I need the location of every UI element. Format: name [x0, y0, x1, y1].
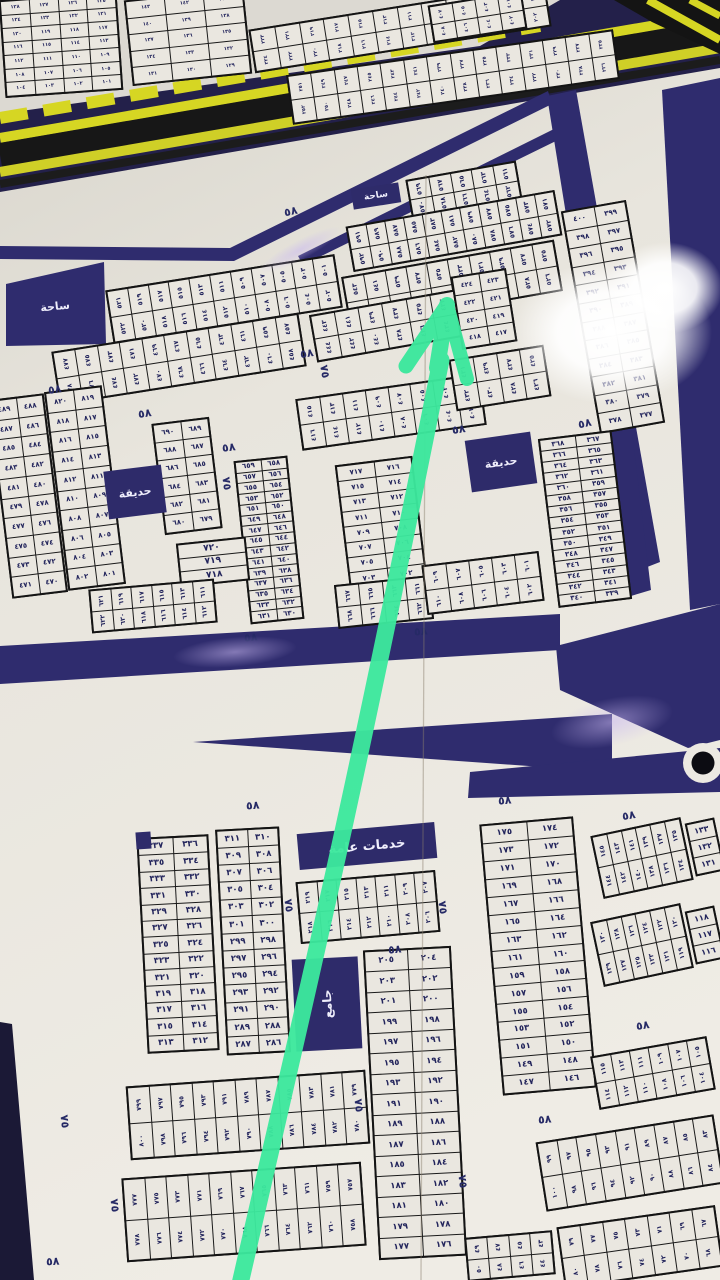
plot-cell: ٨١٩ [74, 387, 103, 409]
plot-cell: ٢٩٠ [257, 1000, 287, 1018]
plot-cell: ٢٠٨ [398, 903, 419, 933]
plot-cell: ١٢١ [88, 8, 117, 22]
plot-cell: ٤٨٧ [0, 418, 20, 440]
plot-cell: ١١٨ [60, 23, 89, 37]
plot-cell: ٣٠٦ [249, 863, 279, 881]
plot-cell: ٥٧١ [535, 192, 556, 215]
plot-cell: ٤٢٩ [474, 354, 500, 381]
street-width-label: ٧٥ [220, 476, 233, 491]
plot-cell: ٢٤٠ [430, 78, 455, 103]
plot-cell: ٦٠٣ [492, 556, 517, 581]
plot-cell: ٤٠٩ [366, 388, 391, 414]
plot-cell: ٧٧٠ [212, 1213, 235, 1254]
plot-cell: ٦٦٥ [359, 582, 383, 604]
plot-cell: ٥١٦ [173, 304, 196, 331]
plot-cell: ١٩٧ [369, 1032, 411, 1054]
plot-cell: ٥٨٦ [408, 237, 429, 260]
plot-cell: ٥٢٧ [511, 246, 535, 273]
plot-cell: ٢١٩ [300, 20, 327, 43]
plot-cell: ٥٠٨ [255, 291, 278, 318]
street-width-label: ٥٨ [413, 625, 428, 637]
plot-cell: ٤٠٢ [501, 10, 525, 30]
plot-cell: ٥٧٢ [539, 213, 560, 236]
plot-cell: ٢١٢ [401, 25, 428, 48]
plot-cell: ٥٢٦ [536, 266, 560, 293]
plot-block-b-strip-1: ٧٩٩٧٩٧٧٩٥٧٩٣٧٩١٧٨٩٧٨٧٧٨٥٧٨٣٧٨١٧٧٩٨٠٠٧٩٨٧… [126, 1070, 371, 1161]
plot-cell: ٤٢٥ [520, 347, 546, 374]
plot-cell: ٨١٨ [49, 410, 78, 432]
plot-cell: ٢١٢ [359, 907, 380, 937]
plot-cell: ٢١٧ [317, 881, 338, 911]
plot-cell: ١٠٢ [64, 77, 93, 91]
plot-cell: ٥٩٠ [370, 243, 391, 266]
plot-cell: ٦١٣ [172, 583, 193, 604]
plot-cell: ٢٩٥ [224, 967, 254, 985]
plot-cell: ٤١٣ [320, 395, 345, 421]
plot-cell: ٢٥٠ [315, 94, 340, 119]
plot-cell: ٥٢٥ [532, 242, 556, 269]
plot-cell: ٧٤ [629, 1246, 654, 1277]
plot-cell: ٣١٦ [182, 1000, 216, 1017]
plot-block-top-board-2: ١٤٣١٤٢١٤١١٤٠١٣٩١٣٨١٣٧١٣٦١٣٥١٣٤١٣٣١٣٢١٣١١… [124, 0, 252, 86]
plot-cell: ٣١٠ [248, 829, 278, 847]
plot-cell: ٦٨ [696, 1237, 720, 1268]
plot-cell: ٢١٣ [356, 877, 377, 907]
plot-cell: ٦٨٧ [183, 437, 211, 457]
plot-cell: ٧٧ [581, 1223, 606, 1254]
plot-block-r-strip-2: ١٤٥١٤٣١٤١١٣٩١٣٧١٣٥١٤٤١٤٢١٤٠١٣٨١٣٦١٣٤ [590, 817, 693, 899]
plot-cell: ٥٠١ [313, 256, 336, 283]
plot-cell: ٣٣٤ [174, 853, 208, 870]
plot-cell: ٥١٨ [153, 308, 176, 335]
plot-block-b-strip-4: ٤٩٤٧٤٥٤٣٥٠٤٨٤٦٤٤ [464, 1230, 556, 1280]
plot-cell: ٤٧٦ [31, 513, 59, 535]
plot-cell: ٨٠٤ [65, 547, 94, 569]
plot-cell: ٤١٠ [369, 413, 394, 439]
plot-block-u-strip-m2: ٦٠٩٦٠٧٦٠٥٦٠٣٦٠١٦١٠٦٠٨٦٠٦٦٠٤٦٠٢ [421, 551, 544, 615]
plot-cell: ١٧٩ [379, 1216, 421, 1238]
plot-cell: ٨٠ [563, 1255, 588, 1280]
plot-cell: ٢١١ [397, 4, 424, 27]
plot-cell: ٦٨٥ [185, 455, 213, 475]
plot-cell: ٤٦٢ [235, 347, 260, 375]
plot-cell: ١٧٧ [380, 1236, 422, 1258]
plot-cell: ٨١٢ [56, 469, 85, 491]
plot-block-r-strip-3: ١٣٠١٢٨١٢٦١٢٤١٢٢١٢٠١٢٩١٢٧١٢٥١٢٣١٢١١١٩ [590, 903, 694, 987]
plot-cell: ١٠٤ [691, 1064, 713, 1091]
plot-cell: ٧٦٥ [252, 1170, 275, 1211]
plot-cell: ٧٥٧ [338, 1164, 361, 1205]
plot-cell: ٢١٠ [378, 905, 399, 935]
plot-blocks-layer: ١٢٨١٢٧١٢٦١٢٥١٢٤١٢٣١٢٢١٢١١٢٠١١٩١١٨١١٧١١٦١… [0, 0, 720, 1280]
plot-cell: ١٢٣ [30, 12, 59, 26]
plot-cell: ٢٠٣ [366, 971, 408, 993]
plot-cell: ١٨٣ [377, 1175, 419, 1197]
plot-cell: ٧١ [648, 1214, 673, 1245]
plot-cell: ٢٣٢ [523, 65, 548, 90]
plot-cell: ٦٧٩ [192, 509, 220, 529]
plot-cell: ٧٧٣ [166, 1176, 189, 1217]
plot-cell: ٤٨٣ [0, 457, 25, 479]
plot-cell: ١١٢ [5, 54, 34, 68]
plot-cell: ٢٩٣ [225, 984, 255, 1002]
plot-cell: ٦٦٧ [336, 585, 360, 607]
plot-block-r-pair-1: ١٧٥١٧٤١٧٣١٧٢١٧١١٧٠١٦٩١٦٨١٦٧١٦٦١٦٥١٦٤١٦٣١… [479, 816, 596, 1095]
plot-cell: ٢١٨ [300, 912, 321, 942]
plot-cell: ٥٧٦ [501, 220, 522, 243]
plot-cell: ١٢٤ [2, 14, 31, 28]
plot-cell: ٣٣٠ [176, 885, 210, 902]
plot-cell: ٢٩٢ [256, 983, 286, 1001]
plot-cell: ٣٢٤ [178, 935, 212, 952]
plot-cell: ٢١٤ [376, 29, 403, 52]
street-width-label: ٥٨ [635, 1019, 650, 1032]
plot-cell: ٧٥ [603, 1220, 628, 1251]
plot-cell: ٦١٩ [111, 588, 132, 609]
plot-cell: ٢٢٦ [592, 55, 617, 80]
plot-cell: ٢٠٠ [410, 989, 452, 1011]
plot-cell: ٣٢٠ [180, 967, 214, 984]
plot-cell: ٧٦٣ [274, 1168, 297, 1209]
plot-cell: ٦٠٦ [472, 582, 497, 607]
street-width-label: ٥٨ [299, 347, 314, 360]
plot-cell: ٨١٧ [76, 407, 105, 429]
plot-cell: ٦١٢ [194, 601, 215, 622]
plot-cell: ٦٨٩ [181, 419, 209, 439]
plot-cell: ٦١٧ [131, 586, 152, 607]
plot-cell: ٤٤٠ [363, 327, 390, 352]
plot-cell: ٤٠٨ [392, 409, 417, 435]
plot-cell: ٧٨٤ [302, 1110, 325, 1146]
plot-cell: ٣٢٩ [142, 904, 176, 921]
plot-cell: ١٠٥ [92, 62, 121, 76]
plot-cell: ٢٨٩ [227, 1019, 257, 1037]
plot-cell: ٧٦٤ [277, 1209, 300, 1250]
area-label: حديقة [465, 432, 538, 493]
plot-cell: ٤٩ [466, 1238, 488, 1259]
plot-cell: ٢٣١ [520, 41, 545, 66]
plot-cell: ٤٣٨ [387, 322, 414, 347]
plot-cell: ٥١٣ [190, 276, 213, 303]
street-width-label: ٧٥ [282, 898, 295, 913]
plot-block-r-strip-4: ١١٥١١٣١١١١٠٩١٠٧١٠٥١١٤١١٢١١٠١٠٨١٠٦١٠٤ [590, 1036, 716, 1110]
plot-cell: ٥٢١ [107, 289, 130, 316]
plot-cell: ٥٠٢ [317, 282, 340, 309]
plot-cell: ٧٣ [625, 1217, 650, 1248]
plot-cell: ٢١٥ [348, 12, 375, 35]
plot-cell: ٥٩٢ [352, 246, 373, 269]
plot-cell: ٤٧٣ [98, 343, 123, 371]
plot-cell: ٢٨٦ [258, 1034, 288, 1052]
street-width-label: ٥٨ [46, 1256, 60, 1268]
plot-cell: ٤٧٩ [2, 497, 30, 519]
plot-cell: ٤٦١ [231, 322, 256, 350]
plot-block-top-board-1: ١٢٨١٢٧١٢٦١٢٥١٢٤١٢٣١٢٢١٢١١٢٠١١٩١١٨١١٧١١٦١… [0, 0, 123, 98]
plot-cell: ٧٩١ [214, 1081, 237, 1117]
plot-cell: ١١٦ [4, 41, 33, 55]
plot-block-r-strip-6: ٧٩٧٧٧٥٧٣٧١٦٩٦٧٨٠٧٨٧٦٧٤٧٢٧٠٦٨ [556, 1205, 720, 1280]
area-label: ساحة [21, 294, 89, 319]
plot-cell: ٥٣٩ [385, 268, 409, 295]
plot-cell: ١١٩ [31, 25, 60, 39]
plot-cell: ٢٠٢ [409, 968, 451, 990]
plot-cell: ٦٠٤ [495, 579, 520, 604]
plot-cell: ٥٨٧ [385, 219, 406, 242]
plot-cell: ٤٧٨ [29, 493, 57, 515]
plot-cell: ٧٨٨ [259, 1113, 282, 1149]
plot-cell: ٣١٢ [183, 1033, 217, 1050]
plot-block-u-pair-e: ٤٠٠٣٩٩٣٩٨٣٩٧٣٩٦٣٩٥٣٩٤٣٩٣٣٩٢٣٩١٣٩٠٣٨٩٣٨٨٣… [561, 200, 665, 434]
plot-cell: ٢٣٣ [497, 45, 522, 70]
plot-cell: ٨١٤ [53, 449, 82, 471]
plot-cell: ٤٧١ [120, 340, 145, 368]
plot-cell: ١٠٩ [91, 48, 120, 62]
plot-cell: ٥٢٨ [515, 270, 539, 297]
plot-cell: ٦١١ [193, 581, 214, 602]
plot-cell: ٣٢٧ [143, 920, 177, 937]
plot-cell: ٢٤١ [404, 58, 429, 83]
plot-cell: ٣٢٢ [179, 951, 213, 968]
plot-cell: ٤٣٢ [455, 382, 481, 409]
plot-cell: ٧٦٢ [298, 1207, 321, 1248]
street-width-label: ٧٥ [457, 1174, 469, 1189]
plot-cell: ٣٠٣ [221, 899, 251, 917]
plot-cell: ٧٨٥ [278, 1076, 301, 1112]
plot-cell: ٣٣٥ [139, 855, 173, 872]
plot-cell: ٣١٧ [147, 1002, 181, 1019]
plot-cell: ٤٠٦ [414, 406, 439, 432]
street-width-label: ٥٨ [538, 1113, 552, 1125]
plot-cell: ٧٨ [585, 1252, 610, 1280]
plot-cell: ٤٠٧ [388, 385, 413, 411]
plot-cell: ٥١٤ [194, 301, 217, 328]
plot-cell: ٣٠٢ [251, 897, 281, 915]
plot-cell: ٥٠٦ [276, 288, 299, 315]
street-width-label: ٥٨ [388, 943, 402, 955]
plot-block-l-strip-s: ٢١٩٢١٧٢١٥٢١٣٢١١٢٠٩٢٠٧٢١٨٢١٦٢١٤٢١٢٢١٠٢٠٨٢… [296, 870, 441, 944]
plot-cell: ٥٨١ [441, 209, 462, 232]
plot-cell: ٢٢١ [275, 24, 302, 47]
street-width-label: ٧٥ [318, 364, 331, 379]
plot-cell: ٦٦٣ [382, 580, 406, 602]
plot-cell: ٥٨٤ [427, 233, 448, 256]
plot-cell: ٣١٩ [146, 985, 180, 1002]
plot-cell: ٤٦٦ [191, 354, 216, 382]
plot-cell: ٢٠١ [367, 991, 409, 1013]
plot-cell: ٣٣٢ [175, 869, 209, 886]
plot-cell: ٥١٠ [235, 295, 258, 322]
plot-cell: ٨٠٦ [63, 528, 92, 550]
plot-cell: ٤٧ [488, 1236, 510, 1257]
plot-cell: ٥٧٣ [516, 196, 537, 219]
plot-block-u-pair-l: ٣٦٨٣٦٧٣٦٦٣٦٥٣٦٤٣٦٣٣٦٢٣٦١٣٦٠٣٥٩٣٥٨٣٥٧٣٥٦٣… [538, 430, 632, 608]
area-label: ساحة [351, 182, 402, 209]
plot-cell: ٦٦٦ [361, 603, 385, 625]
plot-cell: ٧٩٠ [238, 1115, 261, 1151]
plot-cell: ٣٠٠ [252, 914, 282, 932]
plot-cell: ٤٦٣ [209, 326, 234, 354]
street-width-label: ٥٨ [246, 800, 260, 812]
plot-cell: ٤٣٦ [410, 318, 437, 343]
plot-cell: ١٧٨ [421, 1214, 463, 1236]
plot-cell: ٥٠ [468, 1258, 490, 1279]
plot-cell: ٤١٨ [461, 327, 489, 348]
plot-cell: ٢٢٧ [566, 35, 591, 60]
plot-cell: ١٣٠ [172, 60, 211, 79]
plot-cell: ٦٠١ [515, 553, 540, 578]
plot-cell: ٢٩٤ [255, 966, 285, 984]
plot-cell: ١٤٦ [549, 1069, 595, 1090]
plot-cell: ٥١٧ [149, 283, 172, 310]
plot-cell: ٧٦ [607, 1249, 632, 1280]
plot-cell: ٤٦٩ [142, 336, 167, 364]
plot-cell: ٣٢١ [145, 969, 179, 986]
street-width-label: ٥٨ [577, 417, 592, 431]
plot-cell: ٤٦٧ [164, 333, 189, 361]
plot-cell: ٨٠٠ [130, 1122, 153, 1158]
plot-cell: ٧٩٩ [128, 1087, 151, 1123]
plot-cell: ٧٨٧ [257, 1078, 280, 1114]
plot-cell: ٨٠٨ [61, 508, 90, 530]
plot-cell: ٤٠٨ [433, 21, 457, 41]
plot-cell: ١٩١ [373, 1093, 415, 1115]
plot-block-u-strip-m3: ٦٦٧٦٦٥٦٦٣٦٦١٦٦٨٦٦٦٦٦٤٦٦٢ [334, 575, 434, 629]
area-label: حديقة [103, 465, 166, 520]
plot-cell: ٦٣٠ [277, 607, 302, 619]
plot-cell: ٤٤ [532, 1253, 554, 1274]
plot-cell: ٢٢٢ [278, 44, 305, 67]
plot-cell: ٣٣١ [141, 887, 175, 904]
plot-cell: ٦٨٣ [188, 473, 216, 493]
plot-cell: ٧٧٨ [126, 1219, 149, 1260]
plot-cell: ٤١٧ [487, 323, 515, 344]
plot-cell: ٤٥٧ [275, 315, 300, 343]
plot-cell: ٣١٣ [149, 1035, 183, 1052]
plot-cell: ٧٦٦ [255, 1210, 278, 1251]
plot-cell: ٧٧٤ [169, 1216, 192, 1257]
plot-cell: ٦٨٨ [156, 440, 184, 460]
street-width-label: ٥٨ [47, 383, 62, 396]
plot-cell: ٧٦٧ [231, 1171, 254, 1212]
plot-cell: ٧٧٢ [191, 1215, 214, 1256]
plot-cell: ٢٢٣ [251, 28, 278, 51]
plot-cell: ١١٠ [62, 50, 91, 64]
plot-cell: ٧٨٩ [235, 1079, 258, 1115]
plot-cell: ٢٣٠ [546, 61, 571, 86]
plot-cell: ٤٠٤ [478, 14, 502, 34]
plot-cell: ١٠٧ [34, 66, 63, 80]
plot-cell: ٧٩ [559, 1226, 584, 1257]
plot-cell: ٢٠٧ [415, 872, 436, 902]
plot-block-l-pair-2: ٣١١٣١٠٣٠٩٣٠٨٣٠٧٣٠٦٣٠٥٣٠٤٣٠٣٣٠٢٣٠١٣٠٠٢٩٩٢… [215, 826, 291, 1055]
plot-cell: ٥٨٨ [389, 240, 410, 263]
plot-cell: ١١٥ [32, 39, 61, 53]
plot-cell: ٧٥٩ [317, 1165, 340, 1206]
plot-cell: ٦٢٠ [113, 608, 134, 629]
plot-cell: ٢٨٧ [228, 1036, 258, 1054]
plot-cell: ٣٠٥ [220, 882, 250, 900]
plot-cell: ٤٧٤ [33, 532, 61, 554]
plot-cell: ١٠٣ [35, 79, 64, 93]
plot-cell: ١١٣ [90, 35, 119, 49]
plot-cell: ٥٠٧ [251, 266, 274, 293]
plot-cell: ٤٧٠ [38, 572, 66, 594]
plot-cell: ٤٧٥ [76, 347, 101, 375]
plot-cell: ٧٩٨ [152, 1121, 175, 1157]
plot-cell: ١٢٩ [211, 56, 250, 75]
plot-cell: ٤٣٧ [383, 300, 410, 325]
plot-cell: ٤٧٤ [102, 368, 127, 396]
plot-cell: ٤٨ [489, 1257, 511, 1278]
plot-cell: ٥٢٢ [111, 314, 134, 341]
street-width-label: ٥٨ [451, 423, 466, 436]
plot-cell: ٢٥٢ [292, 97, 317, 122]
plot-cell: ٢٩٦ [254, 948, 284, 966]
plot-cell: ٧٧٦ [148, 1218, 171, 1259]
street-width-label: ٥٨ [221, 441, 236, 454]
plot-cell: ٥٠٣ [293, 260, 316, 287]
plot-cell: ٢٣٤ [500, 68, 525, 93]
plot-cell: ٧٩٥ [171, 1084, 194, 1120]
plot-cell: ٥٠٥ [272, 263, 295, 290]
plot-cell: ٢٤٢ [407, 81, 432, 106]
plot-cell: ١٨٧ [375, 1134, 417, 1156]
plot-cell: ٤٤٤ [315, 335, 342, 360]
plot-cell: ٥٨٥ [404, 215, 425, 238]
plot-cell: ١١١ [33, 52, 62, 66]
plot-cell: ٤٣ [530, 1232, 552, 1253]
plot-cell: ٤١٤ [324, 419, 349, 445]
plot-cell: ٧٨١ [321, 1073, 344, 1109]
plot-cell: ١٩٩ [368, 1012, 410, 1034]
plot-map-photo: ١٢٨١٢٧١٢٦١٢٥١٢٤١٢٣١٢٢١٢١١٢٠١١٩١١٨١١٧١١٦١… [0, 0, 720, 1280]
plot-cell: ٥٧٤ [520, 217, 541, 240]
plot-cell: ٤٧٣ [9, 555, 37, 577]
plot-block-u-strip-k2: ٤٣١٤٢٩٤٢٧٤٢٥٤٣٢٤٣٠٤٢٨٤٢٦ [449, 345, 552, 411]
plot-cell: ٦٩٠ [154, 422, 182, 442]
plot-cell: ٧٧٥ [145, 1177, 168, 1218]
plot-cell: ٤٢٦ [524, 371, 550, 398]
plot-cell: ٢٨٨ [258, 1017, 288, 1035]
plot-cell: ٣١٨ [181, 984, 215, 1001]
plot-cell: ٤٤٢ [339, 331, 366, 356]
plot-cell: ٢١٦ [352, 32, 379, 55]
plot-cell: ٦٩ [670, 1211, 695, 1242]
plot-cell: ٥١٩ [128, 286, 151, 313]
plot-cell: ٢٩١ [226, 1001, 256, 1019]
plot-cell: ٥١١ [210, 273, 233, 300]
plot-cell: ٤٦٨ [168, 358, 193, 386]
plot-cell: ٢٢٤ [254, 48, 281, 71]
plot-cell: ٤٦٤ [213, 351, 238, 379]
plot-block-u-pair-k1: ٤٢٤٤٢٣٤٢٢٤٢١٤٢٠٤١٩٤١٨٤١٧ [451, 268, 518, 350]
plot-cell: ٥٧٥ [498, 199, 519, 222]
plot-cell: ٢٣٥ [473, 48, 498, 73]
plot-cell: ٧٩٤ [195, 1118, 218, 1154]
street-width-label: ٧٥ [59, 1114, 71, 1129]
plot-cell: ٥٠٩ [231, 270, 254, 297]
plot-cell: ٤١٥ [298, 398, 323, 424]
plot-cell: ٤١١ [343, 391, 368, 417]
plot-cell: ٣٣٦ [173, 836, 207, 853]
plot-cell: ٦٠٢ [518, 577, 543, 602]
plot-cell: ٢١٣ [373, 8, 400, 31]
plot-cell: ٧٦٠ [320, 1206, 343, 1247]
plot-cell: ٢٣٩ [427, 54, 452, 79]
plot-cell: ٧٦٩ [209, 1173, 232, 1214]
plot-cell: ٦٠٥ [469, 559, 494, 584]
plot-cell: ٤٨٥ [0, 438, 23, 460]
